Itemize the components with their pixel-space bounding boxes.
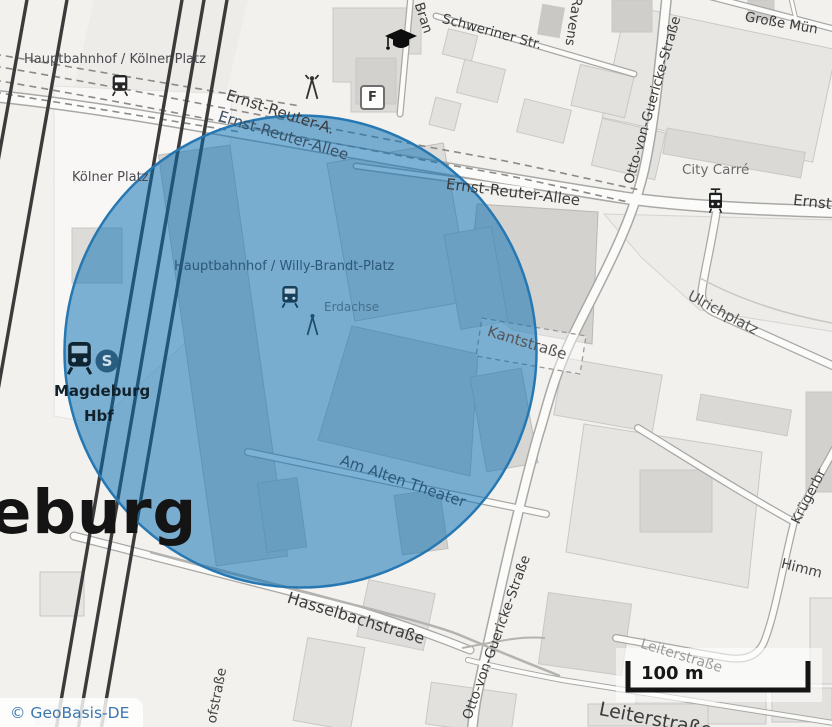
attribution-text[interactable]: © GeoBasis-DE <box>10 704 129 722</box>
scale-bar <box>616 648 822 702</box>
attribution[interactable]: © GeoBasis-DE <box>0 698 143 727</box>
radius-overlay-circle <box>65 116 537 588</box>
map-canvas[interactable] <box>0 0 832 727</box>
map-viewport[interactable]: S F Hauptbahnhof / Kölner Platz Kölner P… <box>0 0 832 727</box>
facility-f-icon: F <box>360 85 385 110</box>
